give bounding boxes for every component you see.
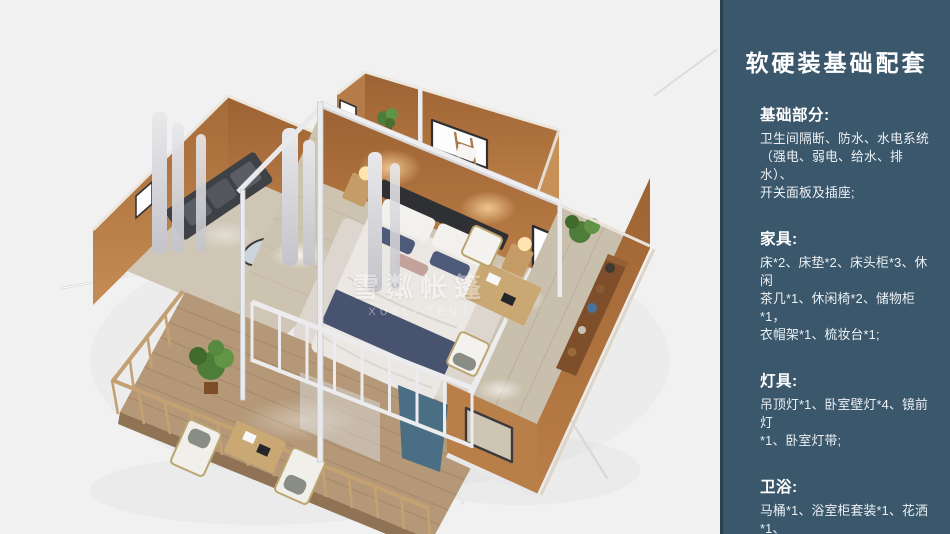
section-line: *1、卧室灯带; <box>760 432 932 450</box>
section-line: （强电、弱电、给水、排水）、 <box>760 148 932 184</box>
floorplan-render: 雪粼帐篷 XUELI TENT <box>0 0 720 534</box>
section-line: 吊顶灯*1、卧室壁灯*4、镜前灯 <box>760 396 932 432</box>
page: 雪粼帐篷 XUELI TENT 软硬装基础配套 基础部分: 卫生间隔断、防水、水… <box>0 0 950 534</box>
section-heading: 灯具: <box>760 369 932 391</box>
section-heading: 家具: <box>760 227 932 249</box>
section-line: 开关面板及插座; <box>760 184 932 202</box>
section-heading: 基础部分: <box>760 103 932 125</box>
section-line: 床*2、床垫*2、床头柜*3、休闲 <box>760 254 932 290</box>
section-line: 茶几*1、休闲椅*2、储物柜*1， <box>760 290 932 326</box>
section-line: 马桶*1、浴室柜套装*1、花洒*1、 <box>760 502 932 534</box>
render-svg <box>0 0 720 534</box>
section-basics: 基础部分: 卫生间隔断、防水、水电系统 （强电、弱电、给水、排水）、 开关面板及… <box>760 103 932 202</box>
section-furniture: 家具: 床*2、床垫*2、床头柜*3、休闲 茶几*1、休闲椅*2、储物柜*1， … <box>760 227 932 344</box>
section-line: 衣帽架*1、梳妆台*1; <box>760 326 932 344</box>
info-sidebar: 软硬装基础配套 基础部分: 卫生间隔断、防水、水电系统 （强电、弱电、给水、排水… <box>720 0 950 534</box>
frame-post <box>241 190 246 400</box>
section-lighting: 灯具: 吊顶灯*1、卧室壁灯*4、镜前灯 *1、卧室灯带; <box>760 369 932 450</box>
section-bathroom: 卫浴: 马桶*1、浴室柜套装*1、花洒*1、 置物架*1、浴帘*1; <box>760 475 932 534</box>
frame-post <box>558 201 563 297</box>
sidebar-title: 软硬装基础配套 <box>737 44 936 78</box>
section-heading: 卫浴: <box>760 475 932 497</box>
section-line: 卫生间隔断、防水、水电系统 <box>760 130 932 148</box>
